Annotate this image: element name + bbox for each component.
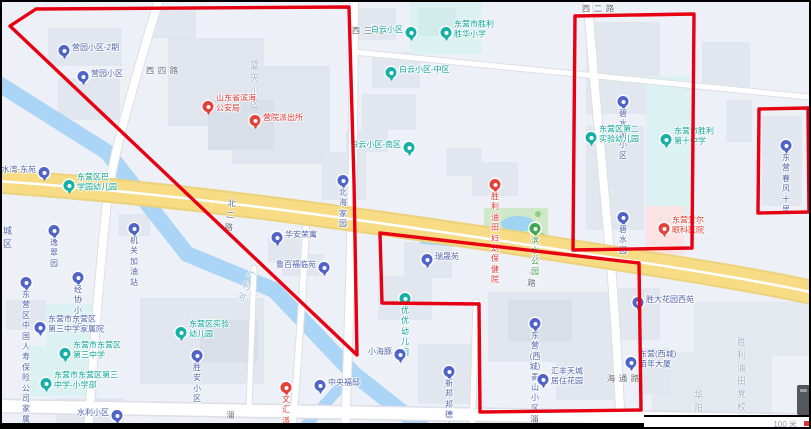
- map-pin-icon[interactable]: [586, 132, 597, 143]
- map-pin-icon[interactable]: [338, 175, 349, 186]
- map-pin-icon[interactable]: [203, 101, 214, 112]
- map-pin-label: 东营区第二 实验幼儿园: [599, 125, 639, 146]
- map-pin-label: 鲁百福临苑: [276, 260, 316, 270]
- map-pin-icon[interactable]: [176, 327, 187, 338]
- map-pin-icon[interactable]: [281, 382, 292, 393]
- map-pin-icon[interactable]: [78, 71, 89, 82]
- map-pin-icon[interactable]: [272, 232, 283, 243]
- map-pin-label: 碧水园: [619, 225, 627, 256]
- area-label: 胜利油田党校: [737, 335, 747, 413]
- map-pin-label: 胜大花园西苑: [646, 295, 694, 305]
- map-pin-icon[interactable]: [406, 27, 417, 38]
- map-pin-icon[interactable]: [112, 410, 123, 421]
- map-pin-label: 东营(西城) 佰年大厦: [639, 350, 676, 371]
- map-pin-label: 小海豚: [368, 347, 392, 357]
- map-pin-icon[interactable]: [192, 350, 203, 361]
- map-pin-label: 东营爱尔 眼科医院: [672, 216, 704, 237]
- map-pin-label: 东营(西城) 青山小区: [530, 331, 541, 414]
- map-pin-label: 北海家园: [339, 188, 347, 230]
- map-pin-icon[interactable]: [661, 134, 672, 145]
- area-label: 城 区: [3, 224, 13, 250]
- map-pin-label: 机关加油站: [130, 236, 138, 288]
- map-pin-icon[interactable]: [250, 115, 261, 126]
- map-pin-icon[interactable]: [404, 142, 415, 153]
- map-pin-icon[interactable]: [60, 348, 71, 359]
- road-label: 海通路: [605, 374, 641, 384]
- map-pin-label: 东营市胜利 第十中学: [674, 127, 714, 148]
- map-pin-label: 东营市东营区第三 中学-小学部: [54, 371, 118, 392]
- map-pin-icon[interactable]: [39, 167, 50, 178]
- map-pin-label: 营院派出所: [263, 113, 303, 123]
- map-pin-icon[interactable]: [490, 179, 501, 190]
- map-pin-icon[interactable]: [386, 67, 397, 78]
- map-pin-label: 东营区巴 学园幼儿园: [77, 173, 117, 194]
- map-pin-icon[interactable]: [626, 357, 637, 368]
- map-pin-icon[interactable]: [633, 297, 644, 308]
- map-pin-icon[interactable]: [21, 277, 32, 288]
- map-pin-label: 东营区实验 幼儿园: [189, 320, 229, 341]
- map-pin-icon[interactable]: [530, 318, 541, 329]
- map-pin-icon[interactable]: [35, 322, 46, 333]
- map-pin-icon[interactable]: [530, 223, 541, 234]
- map-pin-icon[interactable]: [441, 27, 452, 38]
- map-control-widget[interactable]: [797, 385, 810, 415]
- map-pin-icon[interactable]: [618, 96, 629, 107]
- map-pin-icon[interactable]: [659, 223, 670, 234]
- map-pin-label: 东营区中国人寿 保险公司家属院: [22, 290, 30, 429]
- map-pin-icon[interactable]: [422, 254, 433, 265]
- map-pin-label: 华安荣寓: [285, 230, 317, 240]
- map-pin-label: 胜利油田 妇幼保健院: [491, 192, 499, 286]
- map-pin-label: 胜安小区: [193, 363, 201, 405]
- map-pin-label: 汇丰天城 居住花园: [551, 367, 583, 388]
- map-pin-icon[interactable]: [444, 366, 455, 377]
- map-pin-label: 东营市东营区 第三中学家属院: [48, 315, 104, 336]
- map-pin-icon[interactable]: [618, 212, 629, 223]
- map-pin-label: 瑞晟苑: [435, 252, 459, 262]
- map-pin-label: 山东省滨海 公安局: [216, 94, 256, 115]
- map-pin-label: 东营春风十里: [782, 153, 790, 215]
- map-window: 北二路北二路淄博路淄博路西四路西三路西二路海通路广利河蓝天小区胜利油田党校华阳小…: [0, 0, 811, 429]
- map-pin-icon[interactable]: [73, 272, 84, 283]
- map-pin-label: 营园小区: [91, 69, 123, 79]
- map-pin-label: 逸翠园: [50, 238, 58, 269]
- map-pin-icon[interactable]: [59, 45, 70, 56]
- map-pin-icon[interactable]: [319, 262, 330, 273]
- map-pin-icon[interactable]: [781, 140, 792, 151]
- map-pin-label: 水利小区: [77, 408, 109, 418]
- map-pin-icon[interactable]: [395, 349, 406, 360]
- map-pin-icon[interactable]: [129, 223, 140, 234]
- map-pin-icon[interactable]: [64, 180, 75, 191]
- map-pin-label: 浅水湾-东苑: [0, 165, 36, 175]
- map-pin-label: 中央福邸: [328, 378, 360, 388]
- map-attribution-bar: 100 米: [644, 415, 811, 429]
- map-pin-icon[interactable]: [49, 225, 60, 236]
- map-pin-label: 白云小区: [371, 25, 403, 35]
- map-pin-icon[interactable]: [315, 380, 326, 391]
- map-pin-label: 新邦邦德小镇: [445, 379, 453, 429]
- map-pin-label: 营园小区-2期: [72, 43, 119, 53]
- map-pin-label: 东营市东营区 第三中学: [73, 341, 121, 362]
- map-pin-label: 东营市胜利 胜华小学: [454, 20, 494, 41]
- map-pin-label: 白云小区-中区: [399, 65, 450, 75]
- road-label: 西二路: [580, 4, 616, 14]
- map-pin-label: 白云小区-南区: [350, 140, 401, 150]
- map-pin-icon[interactable]: [538, 374, 549, 385]
- road-label: 西四路: [144, 66, 180, 76]
- map-pin-icon[interactable]: [400, 293, 411, 304]
- map-pin-icon[interactable]: [41, 378, 52, 389]
- map-pin-label: 滨水公园: [531, 236, 539, 278]
- scale-label: 100 米: [773, 419, 797, 429]
- map-logo-icon: [804, 421, 809, 426]
